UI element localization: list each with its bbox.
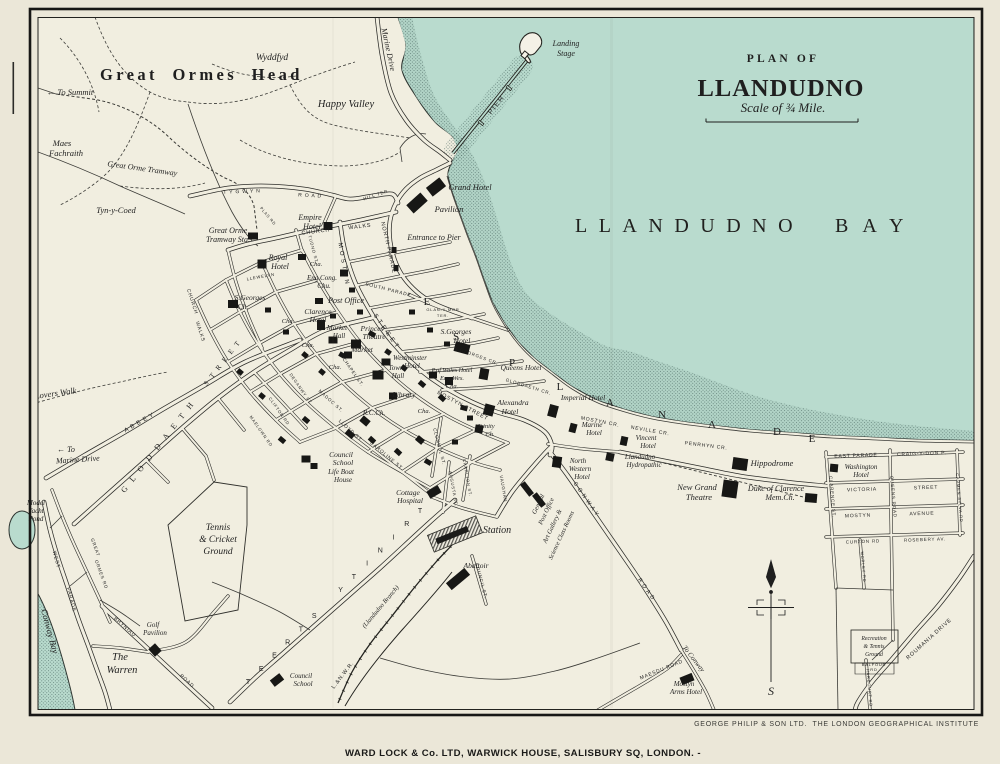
svg-text:VICTORIA: VICTORIA [847, 486, 877, 493]
svg-text:Library: Library [392, 390, 417, 399]
svg-text:S.Georges: S.Georges [441, 327, 472, 336]
svg-text:N: N [658, 409, 666, 421]
svg-text:Market: Market [326, 324, 348, 332]
svg-text:Great Orme: Great Orme [209, 226, 248, 235]
svg-text:S: S [768, 684, 774, 698]
svg-text:E: E [272, 653, 277, 660]
svg-text:Arms Hotel: Arms Hotel [669, 688, 702, 696]
svg-text:Hotel: Hotel [852, 471, 869, 479]
svg-text:I: I [366, 561, 368, 568]
svg-text:Station: Station [483, 525, 511, 536]
svg-text:TER.: TER. [437, 313, 449, 318]
svg-text:Vincent: Vincent [636, 434, 658, 442]
svg-text:New Grand: New Grand [676, 482, 717, 492]
svg-text:Imperial Hotel: Imperial Hotel [560, 393, 605, 402]
svg-text:A: A [708, 419, 716, 431]
svg-text:Hydropathic: Hydropathic [625, 461, 662, 469]
svg-text:Tyn-y-Coed: Tyn-y-Coed [96, 205, 136, 215]
svg-text:Cha.: Cha. [310, 261, 323, 268]
svg-text:Scale of ¾ Mile.: Scale of ¾ Mile. [741, 100, 826, 115]
svg-text:Great Ormes Head: Great Ormes Head [100, 65, 303, 84]
svg-text:Westminster: Westminster [393, 354, 427, 362]
svg-text:Town: Town [389, 364, 404, 372]
svg-text:Fachraith: Fachraith [48, 148, 83, 158]
svg-text:Wyddfyd: Wyddfyd [256, 52, 289, 63]
svg-text:House: House [333, 476, 352, 484]
svg-text:Tennis: Tennis [206, 523, 231, 533]
svg-text:GLAN-Y-MOR: GLAN-Y-MOR [426, 307, 459, 312]
svg-text:PLAN OF: PLAN OF [747, 53, 820, 65]
svg-text:Golf: Golf [147, 621, 161, 629]
svg-text:E: E [259, 666, 264, 673]
svg-text:Pavilion: Pavilion [142, 629, 167, 637]
svg-text:Abattoir: Abattoir [462, 561, 488, 570]
svg-text:Life Boat: Life Boat [327, 468, 355, 476]
svg-text:R O A D: R O A D [298, 192, 322, 199]
svg-text:Hotel: Hotel [639, 442, 656, 450]
svg-text:D: D [773, 426, 781, 438]
svg-text:Landing: Landing [552, 39, 580, 48]
svg-text:Cha.: Cha. [282, 318, 295, 325]
svg-text:I: I [393, 534, 395, 541]
svg-text:Theatre: Theatre [686, 492, 712, 502]
svg-text:LLANDUDNO: LLANDUDNO [698, 75, 865, 102]
svg-text:North: North [569, 457, 587, 465]
svg-text:Cha.: Cha. [418, 408, 431, 415]
svg-text:Recreation: Recreation [860, 636, 886, 642]
svg-text:Alexandra: Alexandra [496, 398, 528, 407]
svg-text:E: E [809, 433, 816, 445]
svg-text:RD: RD [870, 667, 877, 672]
svg-text:Grand Hotel: Grand Hotel [448, 182, 492, 192]
svg-text:R.C.Ch.: R.C.Ch. [362, 409, 386, 417]
svg-text:R: R [404, 521, 409, 528]
svg-text:Tramway Sta.: Tramway Sta. [206, 235, 250, 244]
svg-text:Llandudno: Llandudno [624, 453, 656, 461]
svg-text:Hotel: Hotel [270, 262, 290, 271]
svg-text:Ground: Ground [203, 547, 232, 557]
svg-text:P.of Wales Hotel: P.of Wales Hotel [431, 367, 473, 374]
svg-text:STREET: STREET [914, 485, 939, 492]
svg-text:T: T [352, 574, 357, 581]
svg-text:Marine: Marine [581, 421, 603, 429]
svg-text:L: L [557, 381, 564, 393]
svg-text:← To: ← To [57, 445, 75, 454]
svg-text:S: S [312, 613, 317, 620]
svg-text:Hippodrome: Hippodrome [750, 458, 794, 468]
svg-text:WARD LOCK & Co. LTD, WARWICK H: WARD LOCK & Co. LTD, WARWICK HOUSE, SALI… [345, 748, 701, 759]
svg-text:Royal: Royal [268, 253, 288, 262]
svg-text:School: School [293, 680, 312, 688]
svg-text:Trinity: Trinity [477, 423, 494, 430]
svg-text:Western: Western [569, 465, 592, 473]
svg-text:Cha.: Cha. [446, 383, 459, 390]
svg-text:Mem.Ch.: Mem.Ch. [764, 493, 794, 502]
svg-text:T: T [299, 626, 304, 633]
svg-text:Chu.: Chu. [317, 282, 331, 290]
svg-text:Empire: Empire [297, 213, 322, 222]
svg-text:N: N [378, 547, 383, 554]
svg-text:LLANDUDNO: LLANDUDNO [575, 215, 804, 237]
svg-text:Stage: Stage [557, 49, 575, 58]
svg-text:Hotel: Hotel [585, 429, 602, 437]
svg-text:GEORGE PHILIP & SON LTD. THE: GEORGE PHILIP & SON LTD. THE LONDON GEOG… [694, 721, 979, 728]
svg-text:School: School [333, 458, 353, 467]
svg-text:Cha.: Cha. [329, 364, 342, 371]
svg-text:Ground: Ground [865, 652, 883, 658]
svg-text:Hotel: Hotel [573, 473, 590, 481]
svg-text:BAY: BAY [835, 215, 917, 237]
svg-text:Hospital: Hospital [396, 496, 423, 505]
svg-text:Warren: Warren [107, 665, 138, 676]
svg-text:Hotel: Hotel [403, 362, 420, 370]
svg-text:Mostyn: Mostyn [673, 680, 695, 688]
svg-text:Washington: Washington [845, 463, 878, 471]
svg-text:The: The [112, 652, 128, 663]
svg-text:Hotel: Hotel [309, 315, 327, 324]
svg-text:T: T [246, 679, 251, 686]
svg-text:MOSTYN: MOSTYN [845, 513, 871, 520]
svg-text:Hall: Hall [391, 372, 405, 380]
svg-text:AVENUE: AVENUE [909, 511, 934, 518]
svg-text:& Cricket: & Cricket [199, 535, 237, 545]
svg-text:Theatre: Theatre [362, 332, 386, 341]
svg-text:Entrance to Pier: Entrance to Pier [406, 233, 461, 242]
svg-text:Happy Valley: Happy Valley [317, 99, 375, 110]
svg-text:Ch.: Ch. [238, 302, 249, 311]
svg-text:Eng.Wes.: Eng.Wes. [439, 375, 464, 382]
svg-text:Cha.: Cha. [302, 342, 315, 349]
svg-text:Pavilion: Pavilion [434, 204, 464, 214]
svg-text:Council: Council [290, 672, 312, 680]
svg-text:Maes: Maes [52, 138, 72, 148]
svg-text:← To Summit: ← To Summit [47, 87, 94, 97]
svg-text:T: T [418, 508, 423, 515]
svg-text:S.Georges: S.Georges [235, 293, 266, 302]
svg-text:Y: Y [338, 587, 343, 594]
svg-text:Hotel: Hotel [501, 407, 519, 416]
svg-text:Market: Market [350, 345, 374, 354]
svg-text:Queens Hotel: Queens Hotel [500, 363, 541, 372]
svg-text:Hotel: Hotel [453, 336, 471, 345]
svg-text:Duke of Clarence: Duke of Clarence [747, 484, 805, 493]
svg-text:& Tennis: & Tennis [864, 644, 886, 650]
svg-text:R: R [285, 640, 290, 647]
svg-text:Ch.: Ch. [485, 431, 495, 438]
